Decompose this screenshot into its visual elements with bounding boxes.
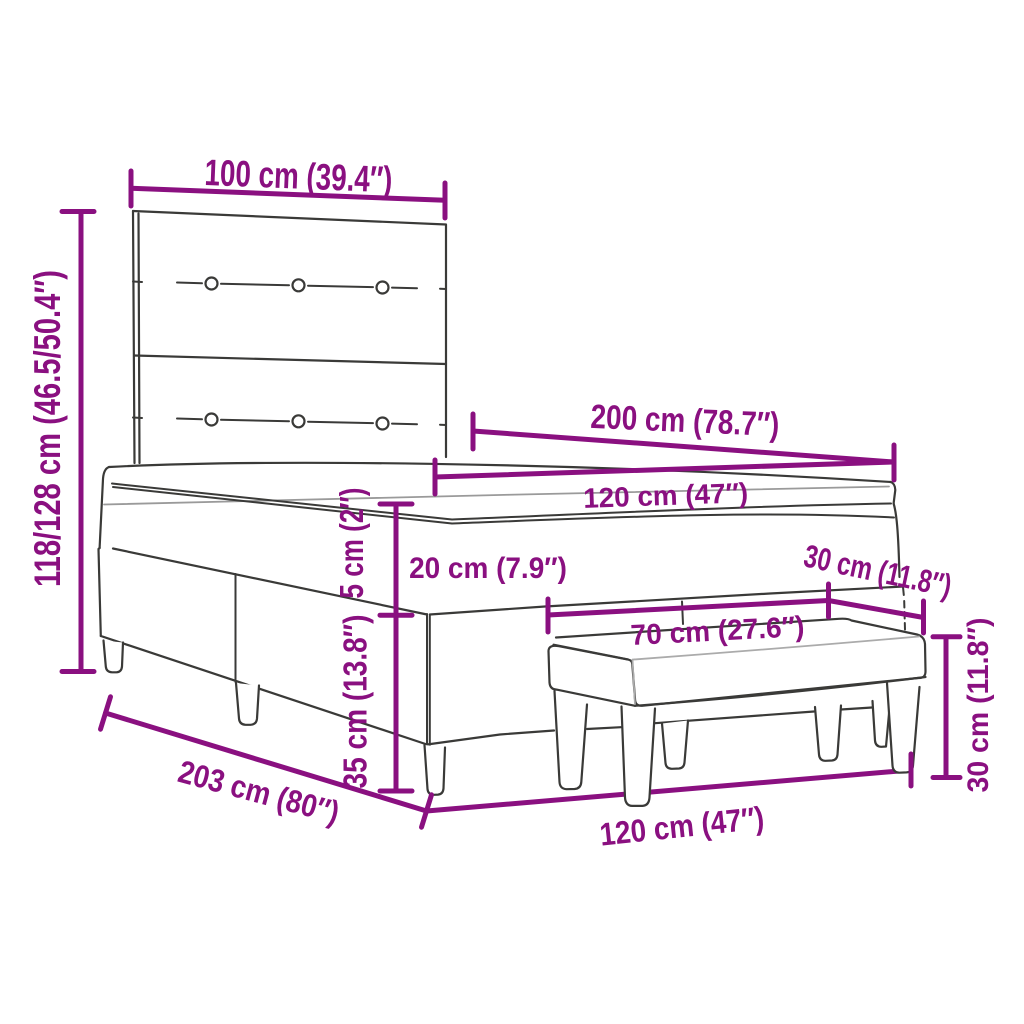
svg-text:120 cm (47″): 120 cm (47″) — [583, 477, 749, 514]
svg-text:30 cm (11.8″): 30 cm (11.8″) — [962, 617, 995, 792]
svg-text:20 cm (7.9″): 20 cm (7.9″) — [409, 552, 567, 585]
svg-text:5 cm (2″): 5 cm (2″) — [334, 488, 371, 599]
svg-text:118/128 cm (46.5/50.4″): 118/128 cm (46.5/50.4″) — [28, 270, 69, 587]
svg-text:100 cm (39.4″): 100 cm (39.4″) — [204, 151, 394, 200]
svg-text:35 cm (13.8″): 35 cm (13.8″) — [337, 615, 374, 789]
